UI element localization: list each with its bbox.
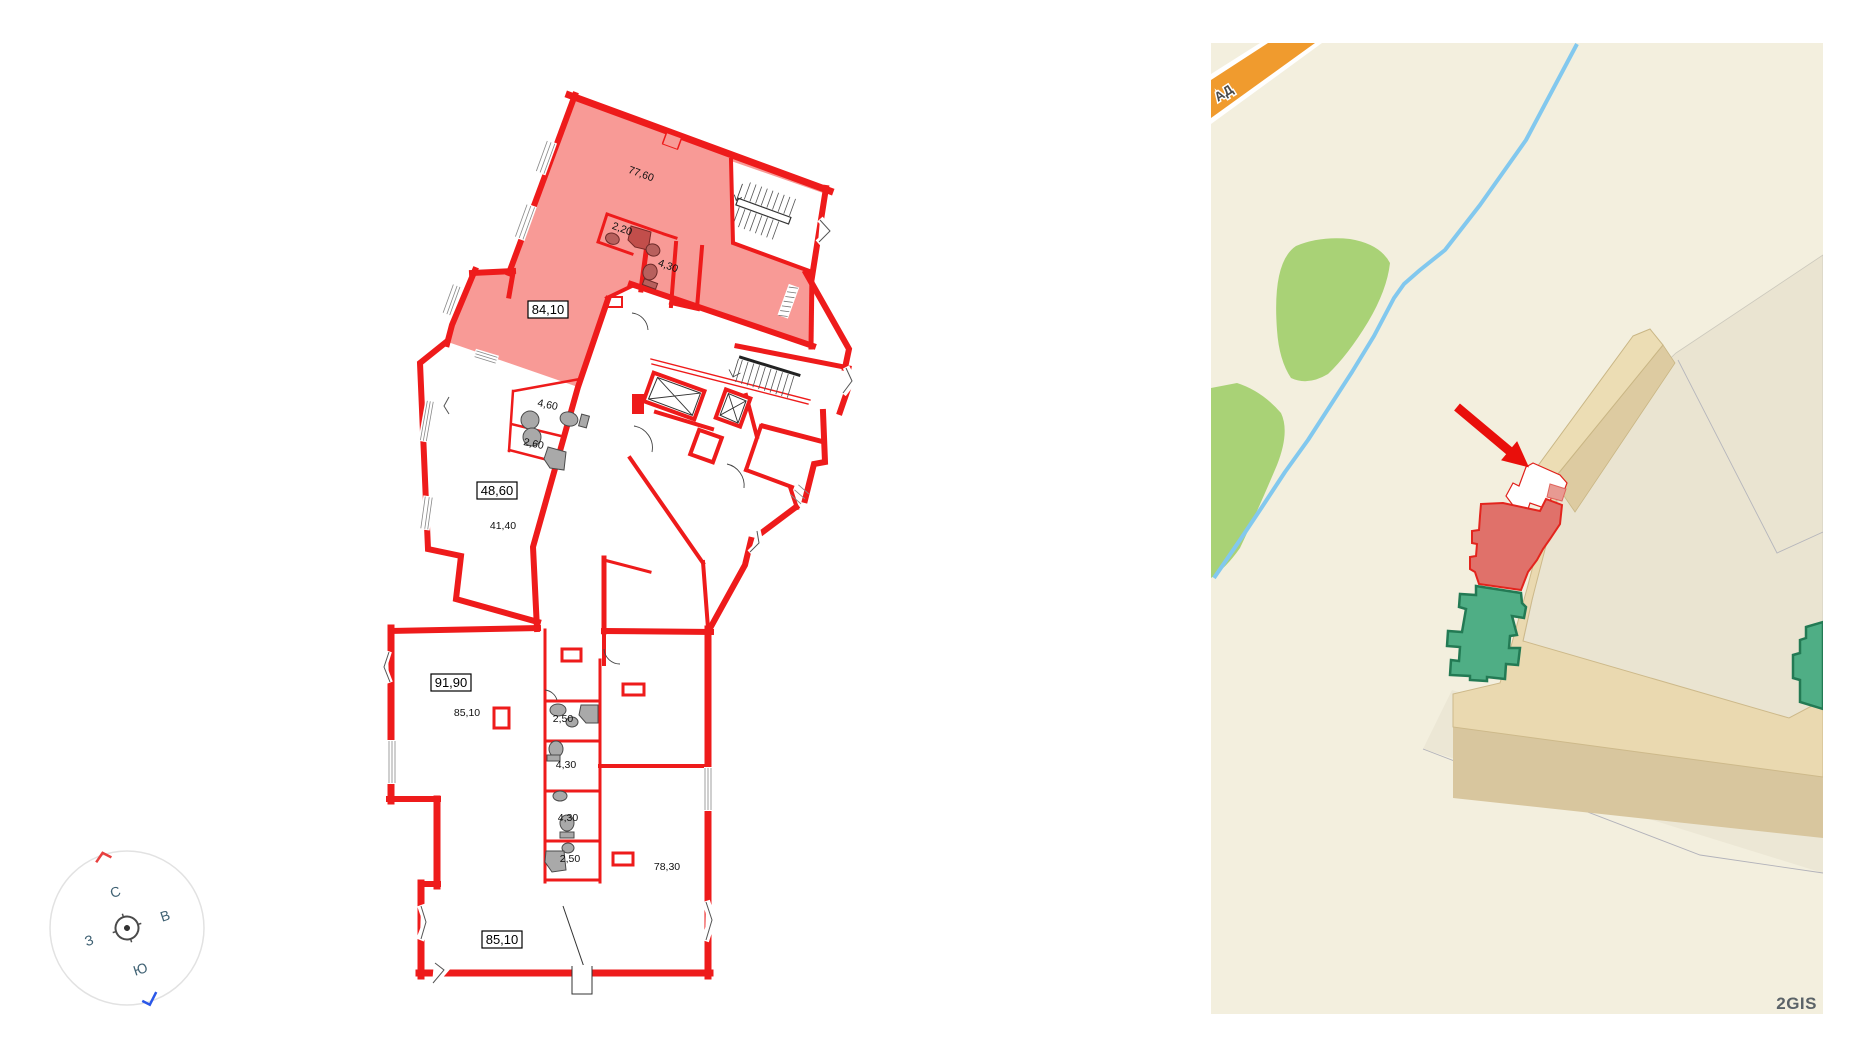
svg-text:85,10: 85,10 [454,707,480,719]
svg-text:78,30: 78,30 [654,861,680,873]
svg-text:85,10: 85,10 [486,932,519,947]
svg-text:2,50: 2,50 [560,853,581,865]
svg-text:4,30: 4,30 [556,759,577,771]
svg-text:84,10: 84,10 [532,302,565,317]
svg-text:41,40: 41,40 [490,520,516,532]
svg-text:2GIS: 2GIS [1776,994,1817,1013]
svg-text:48,60: 48,60 [481,483,514,498]
svg-text:2,50: 2,50 [553,713,574,725]
svg-text:91,90: 91,90 [435,675,468,690]
svg-text:4,30: 4,30 [558,812,579,824]
